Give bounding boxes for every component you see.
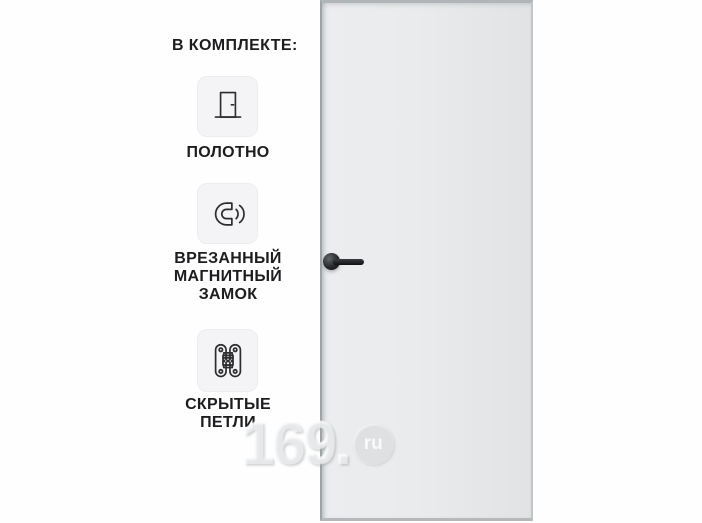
feature-label-hidden-hinge: СКРЫТЫЕ ПЕТЛИ (120, 396, 336, 432)
door-icon (205, 84, 251, 130)
feature-tile-magnet-lock (197, 183, 258, 244)
feature-tile-hidden-hinge (197, 329, 258, 392)
door-panel-render (320, 0, 533, 521)
feature-label-door-leaf: ПОЛОТНО (120, 144, 336, 162)
magnet-icon (204, 190, 252, 238)
feature-label-magnet-lock: ВРЕЗАННЫЙ МАГНИТНЫЙ ЗАМОК (120, 250, 336, 304)
feature-tile-door-leaf (197, 76, 258, 137)
door-handle-lever (333, 259, 364, 265)
included-header: В КОМПЛЕКТЕ: (172, 37, 298, 55)
hinge-icon (204, 336, 252, 386)
product-infographic: В КОМПЛЕКТЕ: ПОЛОТНО ВРЕЗАННЫЙ МАГНИТНЫЙ… (0, 0, 702, 523)
